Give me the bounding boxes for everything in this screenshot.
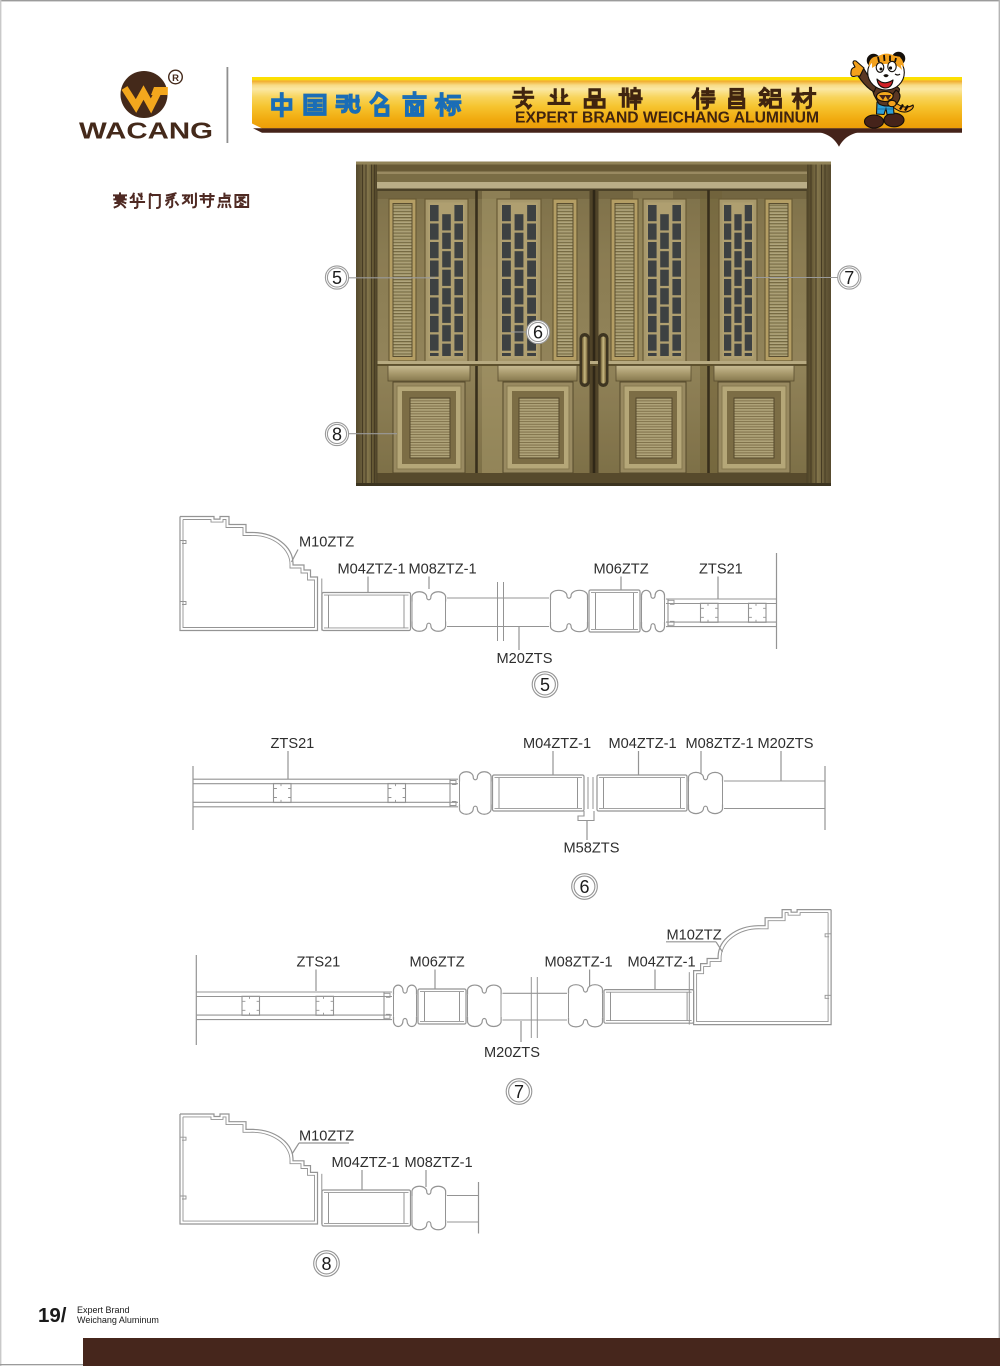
svg-text:M04ZTZ-1: M04ZTZ-1 xyxy=(609,736,677,752)
svg-text:M04ZTZ-1: M04ZTZ-1 xyxy=(338,562,406,578)
svg-text:R: R xyxy=(172,73,179,84)
svg-text:M20ZTS: M20ZTS xyxy=(497,651,553,667)
svg-text:7: 7 xyxy=(514,1082,524,1102)
svg-text:8: 8 xyxy=(321,1254,331,1274)
svg-text:M04ZTZ-1: M04ZTZ-1 xyxy=(332,1155,400,1171)
svg-text:M08ZTZ-1: M08ZTZ-1 xyxy=(686,736,754,752)
svg-text:WACANG: WACANG xyxy=(79,118,213,144)
svg-text:Expert Brand: Expert Brand xyxy=(77,1305,130,1315)
svg-text:6: 6 xyxy=(533,322,543,342)
svg-text:5: 5 xyxy=(540,675,550,695)
svg-text:M10ZTZ: M10ZTZ xyxy=(299,1129,354,1145)
svg-text:7: 7 xyxy=(844,268,854,288)
svg-text:19/: 19/ xyxy=(38,1304,67,1327)
svg-text:M20ZTS: M20ZTS xyxy=(484,1045,540,1061)
svg-text:M08ZTZ-1: M08ZTZ-1 xyxy=(405,1155,473,1171)
svg-text:M58ZTS: M58ZTS xyxy=(564,841,620,857)
svg-text:M04ZTZ-1: M04ZTZ-1 xyxy=(523,736,591,752)
svg-text:M08ZTZ-1: M08ZTZ-1 xyxy=(545,955,613,971)
svg-text:M04ZTZ-1: M04ZTZ-1 xyxy=(628,955,696,971)
svg-text:M10ZTZ: M10ZTZ xyxy=(299,535,354,551)
svg-text:M20ZTS: M20ZTS xyxy=(758,736,814,752)
svg-text:M06ZTZ: M06ZTZ xyxy=(410,955,465,971)
svg-text:ZTS21: ZTS21 xyxy=(297,955,341,971)
svg-text:EXPERT BRAND WEICHANG ALUMINUM: EXPERT BRAND WEICHANG ALUMINUM xyxy=(515,109,819,126)
svg-text:5: 5 xyxy=(332,268,342,288)
svg-text:ZTS21: ZTS21 xyxy=(699,562,743,578)
svg-text:6: 6 xyxy=(579,877,589,897)
svg-text:M06ZTZ: M06ZTZ xyxy=(594,562,649,578)
svg-text:M10ZTZ: M10ZTZ xyxy=(667,928,722,944)
svg-text:M08ZTZ-1: M08ZTZ-1 xyxy=(409,562,477,578)
svg-text:Weichang Aluminum: Weichang Aluminum xyxy=(77,1315,159,1325)
svg-text:ZTS21: ZTS21 xyxy=(271,736,315,752)
svg-text:8: 8 xyxy=(332,424,342,444)
